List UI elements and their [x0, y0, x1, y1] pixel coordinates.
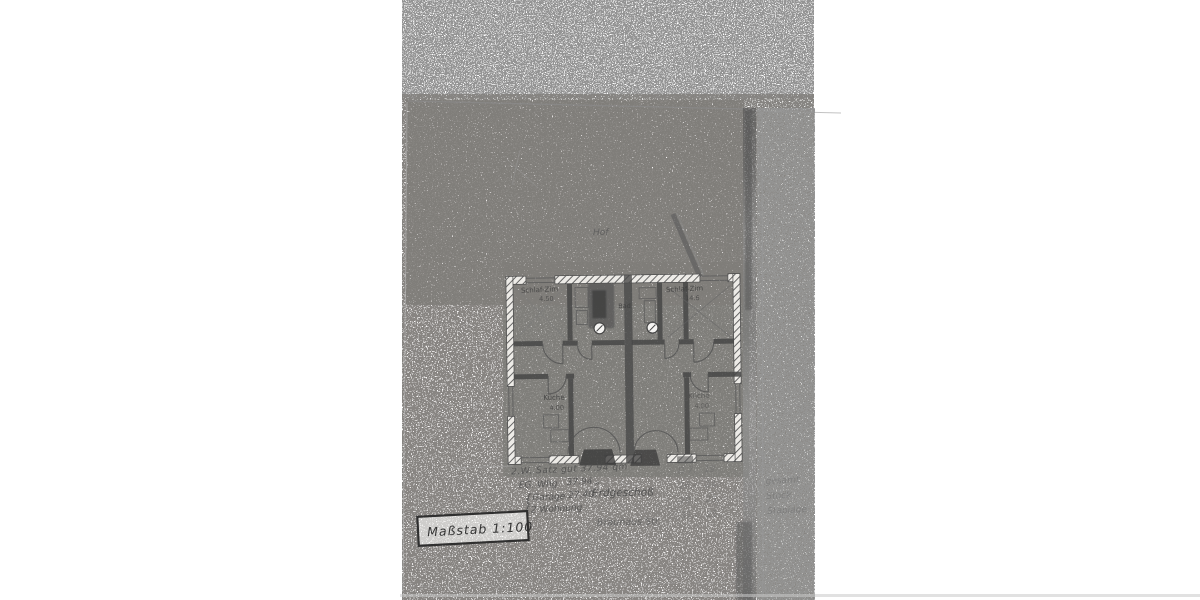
street-label: Brauhaus Str. [597, 516, 661, 528]
faint-r1c1: D 7. [678, 466, 697, 477]
scanned-floorplan-page: Hof [0, 0, 1200, 600]
faint-r1c2: 19 [704, 465, 716, 476]
room-area-bedroom-right: 14.6 [685, 294, 700, 302]
room-area-kitchen-left: 4.00 [549, 404, 564, 412]
faint-r2c2: 24,- [704, 479, 722, 490]
courtyard-label: Hof [593, 228, 610, 238]
scan-canvas: Hof [0, 0, 1200, 600]
faint-r2c1: 26,- [679, 481, 697, 492]
scan-bottom-band [400, 594, 1200, 597]
scale-box: Maßstab 1:100 [417, 511, 534, 546]
faint-r3c3: Stock [766, 491, 792, 502]
faint-r4c1: 31,- [680, 511, 698, 522]
faint-r2c3: gesamt [765, 475, 800, 487]
faint-r4c2: 25,- [706, 509, 724, 520]
room-label-kitchen-right: Küche [688, 392, 709, 400]
chimney-block [588, 283, 615, 328]
room-area-bedroom-left: 4.50 [539, 295, 554, 303]
room-area-kitchen-right: 4.00 [694, 402, 709, 410]
note-line2-value: 37.94 „ [567, 477, 601, 488]
faint-r4c3: Staplage [767, 505, 808, 517]
floor-label: Erdgeschoß [592, 486, 654, 499]
faint-r3c1: 29,- [679, 496, 697, 507]
faint-r3c2: 25,- [705, 494, 723, 505]
note-line2-label: EG. Whg [519, 479, 558, 491]
room-label-kitchen-left: Küche [543, 394, 564, 402]
note-line3-label: Garage [532, 492, 566, 503]
room-label-bath: Bad [618, 302, 631, 310]
note-line3-value: 27.40 [568, 490, 594, 501]
